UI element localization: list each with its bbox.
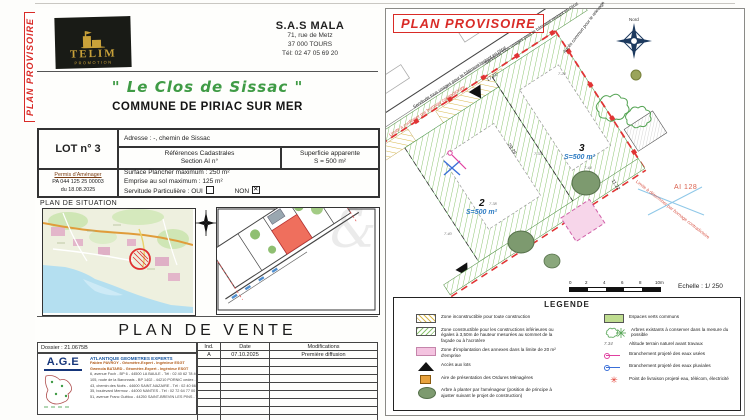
revision-row-a: A 07.10.2025 Première diffusion xyxy=(198,351,378,359)
servitude-label: Servitude Particulière : xyxy=(124,188,189,195)
spot-height: 7.44 xyxy=(584,165,592,170)
superficie-cell: Superficie apparente S = 500 m² xyxy=(281,147,379,169)
legend-label: Point de livraison projeté eau, télécom,… xyxy=(629,376,729,382)
scale-tick: 4 xyxy=(603,280,606,285)
age-details: ATLANTIQUE GEOMETRES EXPERTS Fabien PAVR… xyxy=(88,354,196,414)
north-label: Nord xyxy=(629,17,639,22)
legend-item: Aire de présentation des Ordures Ménagèr… xyxy=(416,375,566,384)
spot-height: 7.33 xyxy=(534,151,542,156)
revisions-header-row: Ind. Date Modifications xyxy=(198,343,378,351)
left-page-plan-de-vente: TELIM PROMOTION S.A.S MALA 71, rue de Me… xyxy=(35,8,380,412)
legend-item: Zone d'implantation des annexes dans la … xyxy=(416,347,566,358)
yellow-hatch-swatch xyxy=(416,314,436,323)
rev-ind: A xyxy=(198,351,221,359)
legend-label: Arbres existants à conserver dans la mes… xyxy=(631,327,739,338)
non-label: NON xyxy=(235,188,249,195)
surveyor-block: A.G.E ATLANTIQUE GEOMETRES EXPERTS Fabie… xyxy=(37,353,197,415)
pink-swatch xyxy=(416,347,436,356)
col-modifications: Modifications xyxy=(270,343,378,351)
legend-label: Espaces verts communs xyxy=(629,314,679,320)
legend-item: Arbre à planter par l'aménageur (positio… xyxy=(416,387,566,398)
age-logo-underline xyxy=(44,369,82,371)
empty-revision-row xyxy=(198,391,378,399)
company-block: S.A.S MALA 71, rue de Metz 37 000 TOURS … xyxy=(235,20,385,58)
legend-item: Branchement projeté des eaux pluviales xyxy=(604,363,739,372)
rev-date: 07.10.2025 xyxy=(221,351,270,359)
legend-box: LEGENDE Zone inconstructible pour toute … xyxy=(393,297,741,411)
legend-right-column: Espaces verts communs Arbres existants à… xyxy=(604,314,739,385)
scale-bar: 0 2 4 6 8 10m xyxy=(569,280,669,292)
legend-item: Branchement projeté des eaux usées xyxy=(604,351,739,360)
oui-checkbox xyxy=(206,186,214,194)
topographic-map-graphic xyxy=(43,209,193,313)
age-office-2: 105, route de la Baronnais - BP 1402 - 4… xyxy=(90,378,194,384)
scale-tick: 8 xyxy=(639,280,642,285)
tree-to-plant-icon xyxy=(418,387,436,399)
emprise-sol: Emprise au sol maximum : 125 m² xyxy=(124,178,223,187)
legend-label: Accès aux lots xyxy=(441,362,471,368)
legend-item: Espaces verts communs xyxy=(604,314,739,323)
access-triangle-icon xyxy=(418,362,434,371)
green-fill-swatch xyxy=(604,314,624,323)
legend-label: Zone inconstructible pour toute construc… xyxy=(441,314,530,320)
altitude-symbol: 7.34 xyxy=(604,341,624,346)
section-divider xyxy=(37,316,378,317)
north-compass-icon xyxy=(616,23,652,59)
age-logo: A.G.E xyxy=(38,354,88,414)
oui-label: OUI xyxy=(191,188,203,195)
legend-label: Arbre à planter par l'aménageur (positio… xyxy=(441,387,566,398)
existing-trees-icon xyxy=(604,327,626,339)
cadastre-line-1: Références Cadastrales xyxy=(165,150,235,158)
col-ind: Ind. xyxy=(198,343,221,351)
permis-title: Permis d'Aménager xyxy=(54,172,101,179)
legend-label: Altitude terrain naturel avant travaux xyxy=(629,341,703,347)
company-phone: Tél: 02 47 05 69 20 xyxy=(235,50,385,59)
legend-item: Zone constructible pour les construction… xyxy=(416,327,566,344)
company-address-1: 71, rue de Metz xyxy=(235,32,385,41)
spot-height: 7.24 xyxy=(558,71,566,76)
age-acronym: A.G.E xyxy=(40,356,86,368)
lot-3-area: S=500 m² xyxy=(564,154,595,161)
superficie-line-2: S = 500 m² xyxy=(314,158,346,166)
scan-watermark-ampersand: & xyxy=(330,200,376,260)
point-livraison-icon: ✳ xyxy=(604,376,624,385)
legend-item: Accès aux lots xyxy=(416,362,566,371)
departement-map-sketch xyxy=(40,372,80,410)
adresse-cell: Adresse : -, chemin de Sissac xyxy=(118,129,379,147)
permis-number: PA 044 125 25 00003 xyxy=(52,179,103,186)
company-name: S.A.S MALA xyxy=(235,20,385,32)
header-divider xyxy=(37,71,378,72)
situation-map xyxy=(42,208,196,316)
lot-info-table: LOT n° 3 Adresse : -, chemin de Sissac R… xyxy=(37,128,380,198)
dossier-number: Dossier : 21.0675B xyxy=(37,342,197,353)
scanned-plan-de-vente-document: { "colors": { "stamp_red": "#d92b27", "t… xyxy=(0,0,750,420)
scale-tick: 6 xyxy=(621,280,624,285)
legend-item: ✳ Point de livraison projeté eau, téléco… xyxy=(604,376,739,385)
right-page-plan-provisoire: PLAN PROVISOIRE Nord Limite à confirmer … xyxy=(385,8,745,416)
situation-label: PLAN DE SITUATION xyxy=(40,200,117,207)
spot-height: 7.40 xyxy=(444,231,452,236)
lot-3-number: 3 xyxy=(579,143,585,154)
project-title: " Le Clos de Sissac " xyxy=(35,78,380,96)
superficie-line-1: Superficie apparente xyxy=(300,150,360,158)
lot-number-cell: LOT n° 3 xyxy=(38,129,118,169)
age-expert-1: Fabien PAVROY - Géomètre-Expert - Ingéni… xyxy=(90,361,194,367)
eaux-usees-icon xyxy=(604,351,624,360)
legend-label: Aire de présentation des Ordures Ménagèr… xyxy=(441,375,533,381)
regles-cell: Surface Plancher maximum : 250 m² Empris… xyxy=(118,169,379,197)
legend-item: Arbres existants à conserver dans la mes… xyxy=(604,327,739,338)
green-hatch-swatch xyxy=(416,327,436,336)
plan-provisoire-stamp: PLAN PROVISOIRE xyxy=(393,14,544,33)
lot-2-area: S=500 m² xyxy=(466,209,497,216)
permis-cell: Permis d'Aménager PA 044 125 25 00003 du… xyxy=(38,169,118,197)
legend-label: Zone d'implantation des annexes dans la … xyxy=(441,347,566,358)
empty-revision-row xyxy=(198,407,378,415)
empty-revision-row xyxy=(198,359,378,367)
age-office-5: 51, avenue Franc Guittou - 44250 SAINT-B… xyxy=(90,395,194,401)
parcel-reference-ai-128: AI 128 xyxy=(674,184,697,191)
legend-label: Zone constructible pour les construction… xyxy=(441,327,566,344)
scan-top-edge-line xyxy=(35,3,735,4)
empty-revision-row xyxy=(198,399,378,407)
spot-height: 7.38 xyxy=(489,201,497,206)
col-date: Date xyxy=(221,343,270,351)
compass-icon xyxy=(195,210,217,236)
company-address-2: 37 000 TOURS xyxy=(235,41,385,50)
spot-height: 7.23 xyxy=(478,61,486,66)
ordures-menageres-icon xyxy=(420,375,431,384)
legend-item: 7.34 Altitude terrain naturel avant trav… xyxy=(604,341,739,347)
legend-label: Branchement projeté des eaux pluviales xyxy=(629,363,711,369)
empty-revision-row xyxy=(198,415,378,420)
scale-tick: 10m xyxy=(655,280,664,285)
lot-2-number: 2 xyxy=(479,198,485,209)
building-icon xyxy=(80,30,106,49)
legend-item: Zone inconstructible pour toute construc… xyxy=(416,314,566,323)
eaux-pluviales-icon xyxy=(604,363,624,372)
empty-revision-row xyxy=(198,375,378,383)
scale-segments xyxy=(569,287,661,292)
empty-revision-row xyxy=(198,383,378,391)
cadastre-line-2: Section AI n° xyxy=(181,158,218,166)
cadastre-cell: Références Cadastrales Section AI n° xyxy=(118,147,281,169)
permis-date: du 18.08.2025 xyxy=(61,187,95,194)
non-checkbox-checked xyxy=(252,186,260,194)
surface-plancher: Surface Plancher maximum : 250 m² xyxy=(124,169,229,178)
empty-revision-row xyxy=(198,367,378,375)
revisions-table: Ind. Date Modifications A 07.10.2025 Pre… xyxy=(197,342,378,420)
scale-tick: 2 xyxy=(585,280,588,285)
logo-subtitle: PROMOTION xyxy=(74,59,112,65)
legend-left-column: Zone inconstructible pour toute construc… xyxy=(416,314,566,399)
rev-modification: Première diffusion xyxy=(270,351,378,359)
commune-subtitle: COMMUNE DE PIRIAC SUR MER xyxy=(35,101,380,113)
scale-ratio: Echelle : 1/ 250 xyxy=(678,283,723,290)
plan-de-vente-title: PLAN DE VENTE xyxy=(35,322,380,340)
telim-promotion-logo: TELIM PROMOTION xyxy=(54,16,131,69)
legend-label: Branchement projeté des eaux usées xyxy=(629,351,705,357)
servitude-row: Servitude Particulière : OUI NON xyxy=(124,186,261,197)
scale-tick: 0 xyxy=(569,280,572,285)
legend-title: LEGENDE xyxy=(394,300,740,309)
